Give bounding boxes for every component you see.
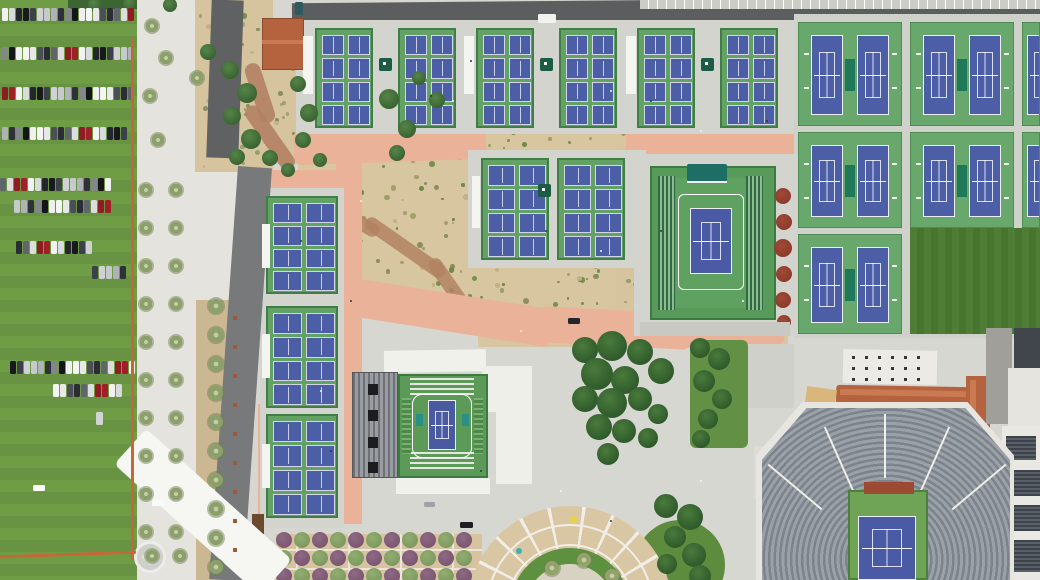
- circle-plaza-palms: [575, 551, 593, 569]
- pickleball-court: [566, 58, 588, 78]
- palm-grid-trees: [456, 532, 472, 548]
- pickleball-court: [727, 82, 749, 102]
- parked-car: [128, 8, 134, 21]
- shrubs-south-center-shrub: [523, 298, 529, 304]
- pickleball-block-w3: [266, 414, 338, 518]
- shrubs-south-center-shrub: [596, 302, 599, 305]
- palm-grid-trees: [438, 532, 454, 548]
- parked-car: [77, 200, 83, 213]
- white-canopy-3: [626, 36, 636, 94]
- parking-strip-north: [640, 0, 1040, 9]
- shade-tent-4: [538, 184, 551, 197]
- walkway-palm-pairs: [138, 296, 154, 312]
- walkway-palm-pairs: [168, 258, 184, 274]
- shrubs-south-center-shrub: [597, 269, 601, 273]
- tennis-court: [857, 145, 889, 217]
- planter-pots: [233, 461, 237, 465]
- shrubs-south-center-shrub: [567, 297, 569, 299]
- vehicle: [460, 522, 473, 528]
- parked-car: [16, 241, 22, 254]
- walkway-palm-pairs: [138, 182, 154, 198]
- stadium-court-backwall: [864, 482, 914, 494]
- pickleball-court: [431, 58, 453, 78]
- people-dots: [300, 240, 302, 242]
- trees-northwest: [221, 61, 239, 79]
- pickleball-court: [592, 105, 614, 125]
- parked-car: [51, 127, 57, 140]
- bleacher-vent-4: [368, 462, 378, 473]
- planter-palms: [207, 471, 225, 489]
- pickleball-court: [670, 58, 692, 78]
- parked-car: [65, 241, 71, 254]
- parked-car: [77, 178, 83, 191]
- shrubs-center-shrub: [452, 218, 455, 221]
- tree-cluster-center: [612, 419, 636, 443]
- parked-car: [120, 266, 126, 279]
- parked-car: [56, 200, 62, 213]
- pickleball-court: [306, 226, 335, 246]
- trees-northwest: [281, 163, 295, 177]
- rooftop-tables: [852, 356, 855, 359]
- parked-car: [44, 87, 50, 100]
- planter-palms: [207, 355, 225, 373]
- shade-tent-3: [701, 58, 714, 71]
- pickleball-court: [348, 82, 370, 102]
- pickleball-court: [306, 313, 335, 334]
- tennis-court: [969, 145, 1001, 217]
- tree-cluster-by-circle: [664, 526, 686, 548]
- palm-grid-trees: [276, 532, 292, 548]
- parked-car: [58, 47, 64, 60]
- pickleball-block-n4: [559, 28, 617, 128]
- rooftop-tables: [865, 356, 868, 359]
- light-pole: [804, 163, 809, 165]
- pickleball-block-w2: [266, 306, 338, 408]
- pickleball-court: [273, 445, 302, 466]
- parked-car: [0, 178, 6, 191]
- orange-boundary-line: [131, 38, 134, 560]
- palm-grid-trees: [384, 550, 400, 566]
- ministadium-roof-south: [396, 478, 490, 494]
- parked-car: [44, 47, 50, 60]
- pickleball-court: [566, 105, 588, 125]
- walkway-palm-pairs: [168, 296, 184, 312]
- trees-grass-patch: [693, 370, 715, 392]
- walkway-palm-pairs: [168, 372, 184, 388]
- pickleball-court: [483, 82, 505, 102]
- people-dots: [600, 250, 602, 252]
- people-dots: [766, 120, 768, 122]
- parked-car: [86, 241, 92, 254]
- light-pole: [892, 53, 897, 55]
- people-dots: [660, 230, 662, 232]
- pickleball-court: [509, 105, 531, 125]
- parked-car: [51, 241, 57, 254]
- parked-car: [63, 178, 69, 191]
- light-pole: [1004, 53, 1009, 55]
- parked-car: [107, 87, 113, 100]
- tree-cluster-center: [627, 339, 653, 365]
- parked-car: [116, 384, 122, 397]
- rooftop-tables: [878, 378, 881, 381]
- parked-car: [101, 361, 107, 374]
- white-canopy-w3: [262, 444, 270, 488]
- shrubs-center-shrub: [410, 213, 416, 219]
- parked-car: [2, 127, 8, 140]
- light-pole: [804, 87, 809, 89]
- pickleball-court: [488, 236, 515, 257]
- stadium-center-court: [858, 516, 916, 580]
- parked-car: [122, 361, 128, 374]
- parked-car: [84, 200, 90, 213]
- show-court-bleachers-east: [746, 176, 763, 310]
- trees-northwest: [412, 71, 426, 85]
- parked-car: [30, 8, 36, 21]
- parked-car: [79, 8, 85, 21]
- white-canopy-w2: [262, 334, 270, 378]
- aerial-photo-tennis-facility: [0, 0, 1040, 580]
- shade-tent-2: [540, 58, 553, 71]
- parked-car: [23, 127, 29, 140]
- show-court-canopy: [687, 164, 727, 181]
- palm-grid-trees: [294, 550, 310, 566]
- trees-northwest: [379, 89, 399, 109]
- people-dots: [700, 130, 702, 132]
- parked-car: [2, 8, 8, 21]
- parked-car: [93, 8, 99, 21]
- pickleball-court: [753, 105, 775, 125]
- pickleball-court: [595, 165, 622, 186]
- parked-car: [108, 361, 114, 374]
- parked-car: [72, 8, 78, 21]
- ministadium-building-east2: [496, 410, 532, 484]
- shrubs-south-center-shrub: [495, 283, 499, 287]
- pickleball-court: [519, 236, 546, 257]
- trees-grass-patch: [692, 430, 710, 448]
- trees-northwest: [237, 83, 257, 103]
- parked-car: [67, 384, 73, 397]
- tree-cluster-center: [572, 386, 598, 412]
- parked-car: [59, 361, 65, 374]
- trees-northwest: [223, 107, 241, 125]
- pickleball-court: [348, 58, 370, 78]
- walkway-palm-pairs: [138, 448, 154, 464]
- tennis-court: [811, 145, 843, 217]
- shrubs-center-shrub: [384, 195, 390, 201]
- tennis-court: [857, 35, 889, 115]
- parked-car: [60, 384, 66, 397]
- palm-grid-trees: [402, 568, 418, 580]
- pickleball-court: [483, 35, 505, 55]
- red-bushes: [776, 214, 792, 230]
- trees-northwest: [295, 132, 311, 148]
- people-dots: [350, 300, 352, 302]
- pickleball-court: [306, 470, 335, 491]
- walkway-palms-north: [172, 548, 188, 564]
- people-dots: [610, 90, 612, 92]
- palm-grid-trees: [312, 532, 328, 548]
- pickleball-court: [306, 445, 335, 466]
- parked-car: [21, 200, 27, 213]
- shrubs-center-shrub: [376, 259, 380, 263]
- palm-grid-trees: [348, 568, 364, 580]
- pickleball-court: [564, 165, 591, 186]
- shrubs-center-shrub: [396, 227, 398, 229]
- tennis-block-r1c3: [1022, 22, 1040, 126]
- ministadium-roof-north: [384, 349, 486, 373]
- light-pole: [1004, 163, 1009, 165]
- palm-grid-trees: [402, 532, 418, 548]
- light-pole: [1004, 87, 1009, 89]
- pickleball-court: [306, 271, 335, 291]
- shrubs-south-center-shrub: [500, 288, 504, 292]
- parked-car: [16, 87, 22, 100]
- parked-car: [100, 47, 106, 60]
- rooftop-tables: [891, 378, 894, 381]
- shrubs-center-shrub: [401, 199, 404, 202]
- parked-car: [7, 178, 13, 191]
- pickleball-court: [592, 35, 614, 55]
- pickleball-block-c2: [557, 158, 625, 260]
- shrubs-center-shrub: [386, 269, 391, 274]
- parked-car: [94, 361, 100, 374]
- pickleball-court: [273, 203, 302, 223]
- tennis-block-r1c1: [798, 22, 902, 126]
- planter-palms: [207, 442, 225, 460]
- rooftop-tables: [917, 367, 920, 370]
- parked-car: [16, 8, 22, 21]
- walkway-palms-north: [144, 18, 160, 34]
- parked-car: [44, 8, 50, 21]
- trees-northwest: [200, 44, 216, 60]
- palm-grid-trees: [312, 550, 328, 566]
- vehicle: [538, 14, 556, 23]
- walkway-palm-pairs: [138, 410, 154, 426]
- parked-car: [37, 127, 43, 140]
- parked-car: [45, 361, 51, 374]
- parked-car: [51, 47, 57, 60]
- palm-grid-trees: [294, 532, 310, 548]
- parked-car: [107, 8, 113, 21]
- parked-car: [93, 127, 99, 140]
- pickleball-court: [670, 82, 692, 102]
- pickleball-court: [727, 58, 749, 78]
- planter-palms: [207, 326, 225, 344]
- walkway-palm-pairs: [168, 220, 184, 236]
- shrubs-strip-mid-shrub: [589, 137, 592, 140]
- tennis-block-r1c2: [910, 22, 1014, 126]
- rooftop-tables: [917, 356, 920, 359]
- palm-grid-trees: [294, 568, 310, 580]
- tree-cluster-center: [638, 428, 658, 448]
- parked-car: [87, 361, 93, 374]
- parked-car: [95, 384, 101, 397]
- parked-car: [84, 178, 90, 191]
- people-dots: [360, 200, 362, 202]
- planter-pots: [233, 374, 237, 378]
- rooftop-tables: [865, 378, 868, 381]
- planter-pots: [233, 345, 237, 349]
- tree-cluster-center: [586, 414, 612, 440]
- palm-grid-trees: [438, 550, 454, 566]
- red-bushes: [775, 188, 791, 204]
- pickleball-court: [564, 189, 591, 210]
- rooftop-tables: [852, 378, 855, 381]
- shade-tent-1: [379, 58, 392, 71]
- parked-car: [31, 361, 37, 374]
- parked-car: [121, 8, 127, 21]
- parked-car: [16, 47, 22, 60]
- pickleball-court: [273, 313, 302, 334]
- pickleball-court: [566, 82, 588, 102]
- parked-car: [23, 241, 29, 254]
- parked-car: [9, 127, 15, 140]
- pickleball-court: [753, 35, 775, 55]
- tree-cluster-center: [597, 443, 619, 465]
- tree-cluster-center: [597, 331, 627, 361]
- planter-palms: [207, 558, 225, 576]
- planter-pots: [233, 432, 237, 436]
- planter-pots: [233, 519, 237, 523]
- yellow-marker: [570, 516, 577, 523]
- tree-cluster-center: [648, 404, 668, 424]
- parked-car: [100, 87, 106, 100]
- pickleball-block-n3: [476, 28, 534, 128]
- teal-windscreen: [957, 59, 967, 91]
- people-dots: [480, 470, 482, 472]
- tennis-court: [923, 145, 955, 217]
- pickleball-court: [753, 58, 775, 78]
- walkway-palms-north: [158, 50, 174, 66]
- parked-car: [109, 384, 115, 397]
- rooftop-tables: [891, 367, 894, 370]
- pickleball-block-n2: [398, 28, 456, 128]
- shrubs-south-center-shrub: [593, 274, 599, 280]
- parked-car: [58, 8, 64, 21]
- red-bushes: [774, 239, 792, 257]
- parked-car: [28, 178, 34, 191]
- pickleball-court: [753, 82, 775, 102]
- pickleball-block-w1: [266, 196, 338, 294]
- parked-car: [86, 127, 92, 140]
- light-pole: [1004, 197, 1009, 199]
- people-dots: [610, 520, 612, 522]
- pickleball-court: [595, 213, 622, 234]
- parked-car: [58, 87, 64, 100]
- teal-windscreen: [957, 165, 967, 197]
- pickleball-court: [306, 249, 335, 269]
- parked-car: [65, 127, 71, 140]
- pickleball-block-n1: [315, 28, 373, 128]
- people-dots: [330, 450, 332, 452]
- bleacher-vent-1: [368, 384, 378, 395]
- trees-grass-patch: [712, 389, 732, 409]
- parked-car: [86, 47, 92, 60]
- trees-northwest: [290, 76, 306, 92]
- people-dots: [520, 330, 522, 332]
- parked-car: [35, 200, 41, 213]
- pickleball-court: [483, 58, 505, 78]
- palm-grid-trees: [384, 532, 400, 548]
- pickleball-court: [644, 35, 666, 55]
- parked-car: [42, 200, 48, 213]
- teal-marker: [516, 548, 522, 554]
- pickleball-court: [306, 361, 335, 382]
- parked-car: [10, 361, 16, 374]
- parked-car: [23, 87, 29, 100]
- parked-car: [9, 87, 15, 100]
- parked-car: [93, 87, 99, 100]
- parked-car: [100, 127, 106, 140]
- palm-grid-trees: [330, 532, 346, 548]
- tennis-court: [969, 35, 1001, 115]
- walkway-palm-pairs: [138, 258, 154, 274]
- walkway-palm-pairs: [138, 372, 154, 388]
- parked-car: [100, 8, 106, 21]
- parked-car: [58, 241, 64, 254]
- parked-car: [65, 8, 71, 21]
- light-pole: [892, 197, 897, 199]
- red-bushes: [776, 266, 792, 282]
- shrubs-center-shrub: [414, 175, 419, 180]
- pickleball-court: [644, 105, 666, 125]
- parked-car: [72, 47, 78, 60]
- parked-car: [99, 266, 105, 279]
- pickleball-court: [566, 35, 588, 55]
- tennis-court: [1027, 145, 1040, 217]
- tennis-block-r2c3: [1022, 132, 1040, 228]
- parked-car: [102, 384, 108, 397]
- pickleball-court: [519, 213, 546, 234]
- parked-car: [52, 361, 58, 374]
- pickleball-court: [273, 271, 302, 291]
- rooftop-tables: [865, 367, 868, 370]
- parked-car: [37, 47, 43, 60]
- ministadium-court: [428, 400, 456, 450]
- pickleball-court: [644, 58, 666, 78]
- circle-plaza-palms: [603, 567, 621, 580]
- parked-car: [44, 241, 50, 254]
- pickleball-court: [488, 189, 515, 210]
- parked-car: [79, 47, 85, 60]
- walkway-palm-pairs: [168, 486, 184, 502]
- dark-building-ne: [1014, 328, 1040, 370]
- parked-car: [53, 384, 59, 397]
- parked-car: [91, 178, 97, 191]
- shrubs-left-of-courts-shrub: [282, 116, 285, 119]
- parked-car: [37, 241, 43, 254]
- tennis-court: [923, 35, 955, 115]
- trees-northwest: [262, 150, 278, 166]
- roof-ridge-nw: [262, 40, 304, 44]
- light-pole: [804, 197, 809, 199]
- pickleball-court: [488, 213, 515, 234]
- red-bushes: [775, 292, 791, 308]
- shrubs-strip-mid-shrub: [548, 137, 551, 140]
- parked-car: [37, 87, 43, 100]
- shrubs-left-of-courts-shrub: [280, 103, 284, 107]
- pickleball-court: [273, 226, 302, 246]
- parked-car: [30, 47, 36, 60]
- palm-grid-trees: [366, 532, 382, 548]
- parked-car: [114, 47, 120, 60]
- walkway-palm-pairs: [168, 182, 184, 198]
- parked-car: [114, 8, 120, 21]
- pickleball-court: [322, 105, 344, 125]
- parked-car: [79, 87, 85, 100]
- pickleball-court: [564, 236, 591, 257]
- parked-car: [37, 8, 43, 21]
